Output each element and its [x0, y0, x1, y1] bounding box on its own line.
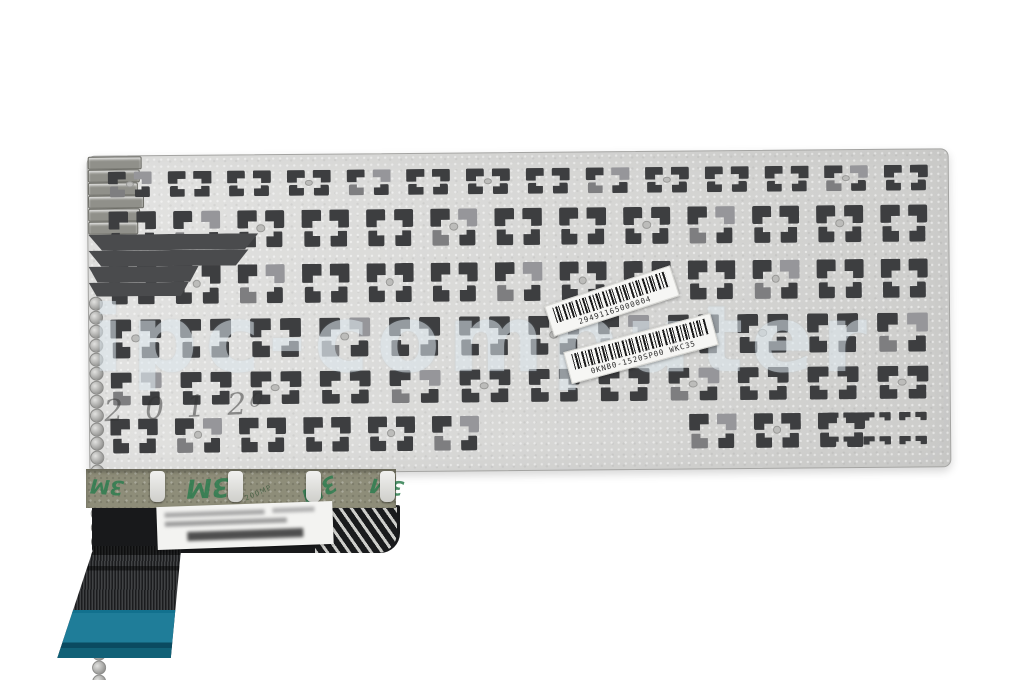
adhesive-fine-print: 200MP: [244, 484, 273, 503]
key-cutout: [428, 207, 480, 247]
key-cutout: [643, 166, 691, 194]
key-cutout: [345, 169, 393, 197]
key-cutout: [621, 206, 673, 246]
key-cutout: [404, 168, 452, 196]
key-cutout: [763, 165, 811, 193]
key-cutout: [178, 318, 234, 360]
key-cutout: [751, 412, 803, 449]
key-cutout: [165, 170, 213, 198]
key-cutout: [557, 206, 609, 246]
key-cutout: [805, 366, 861, 402]
rivet: [92, 675, 106, 680]
rivet: [90, 409, 104, 423]
adhesive-strip-3m: 3M 3M 3M 3M 200MP: [86, 469, 396, 508]
key-cutout: [364, 262, 416, 304]
key-cutout: [805, 312, 861, 354]
arrow-key-cutout: [898, 411, 928, 429]
rivet: [89, 325, 103, 339]
key-cutout: [299, 208, 351, 248]
key-cutout: [285, 169, 333, 197]
key-cutout: [822, 165, 870, 193]
key-cutout: [317, 316, 373, 358]
key-cutout: [703, 166, 751, 194]
key-cutout: [735, 366, 791, 402]
key-cutout: [387, 369, 443, 405]
key-cutout: [493, 261, 545, 303]
key-cutout: [874, 312, 930, 354]
rivet: [90, 437, 104, 451]
blurred-info-label: [156, 501, 333, 550]
key-cutout: [666, 367, 722, 403]
keyboard-backplate: [87, 148, 952, 475]
key-cutout: [366, 416, 418, 453]
key-cutout: [247, 317, 303, 359]
alignment-post: [306, 471, 321, 502]
key-cutout: [583, 167, 631, 195]
key-cutout: [225, 170, 273, 198]
key-cutout: [430, 415, 482, 452]
key-cutout: [106, 171, 154, 199]
key-cutout: [457, 369, 513, 405]
wide-cutout: [89, 266, 199, 283]
key-cutout: [237, 417, 289, 454]
key-cutout: [236, 263, 288, 305]
rivet: [90, 423, 104, 437]
rivet: [89, 311, 103, 325]
wide-cutout: [88, 233, 258, 250]
3m-logo: 3M: [89, 476, 124, 498]
alignment-post: [150, 471, 165, 502]
arrow-key-cutout: [826, 436, 856, 454]
key-cutout: [879, 258, 931, 300]
key-cutout: [686, 259, 738, 301]
key-cutout: [685, 205, 737, 245]
arrow-key-cutout: [826, 412, 856, 430]
rivet: [89, 297, 103, 311]
blurred-label-content: [156, 501, 333, 550]
rivet: [89, 353, 103, 367]
spacebar-slot: [88, 156, 142, 169]
3m-logo: 3M: [186, 473, 231, 501]
ribbon-cable: [52, 546, 184, 658]
rivet: [89, 367, 103, 381]
key-cutout: [814, 258, 866, 300]
alignment-post: [228, 471, 243, 502]
arrow-key-cutout: [898, 435, 928, 453]
key-cutout: [814, 204, 866, 244]
product-photo: ipc-computer 2012 0 3M 3M 3M 3M 200MP 29…: [0, 0, 1024, 680]
key-cutout: [464, 168, 512, 196]
key-cutout: [364, 208, 416, 248]
key-cutout: [750, 205, 802, 245]
rivet: [90, 381, 104, 395]
key-cutout: [750, 259, 802, 301]
key-cutout: [878, 203, 930, 243]
key-cutout: [318, 370, 374, 406]
key-cutout: [108, 318, 164, 360]
key-cutout: [301, 416, 353, 453]
key-cutout: [429, 262, 481, 304]
key-cutout: [735, 313, 791, 355]
wide-cutout: [88, 249, 248, 266]
rivet: [92, 661, 106, 675]
key-cutout: [875, 365, 931, 401]
key-cutout: [300, 263, 352, 305]
wide-cutout: [89, 282, 189, 297]
rivet: [89, 339, 103, 353]
key-cutout: [492, 207, 544, 247]
rivet: [90, 395, 104, 409]
arrow-key-cutout: [862, 412, 892, 430]
alignment-post: [380, 471, 395, 502]
key-cutout: [687, 413, 739, 450]
arrow-key-cutout: [862, 436, 892, 454]
key-cutout: [456, 315, 512, 357]
key-cutout: [387, 316, 443, 358]
key-cutout: [882, 164, 930, 192]
key-cutout: [524, 167, 572, 195]
rivet: [90, 451, 104, 465]
